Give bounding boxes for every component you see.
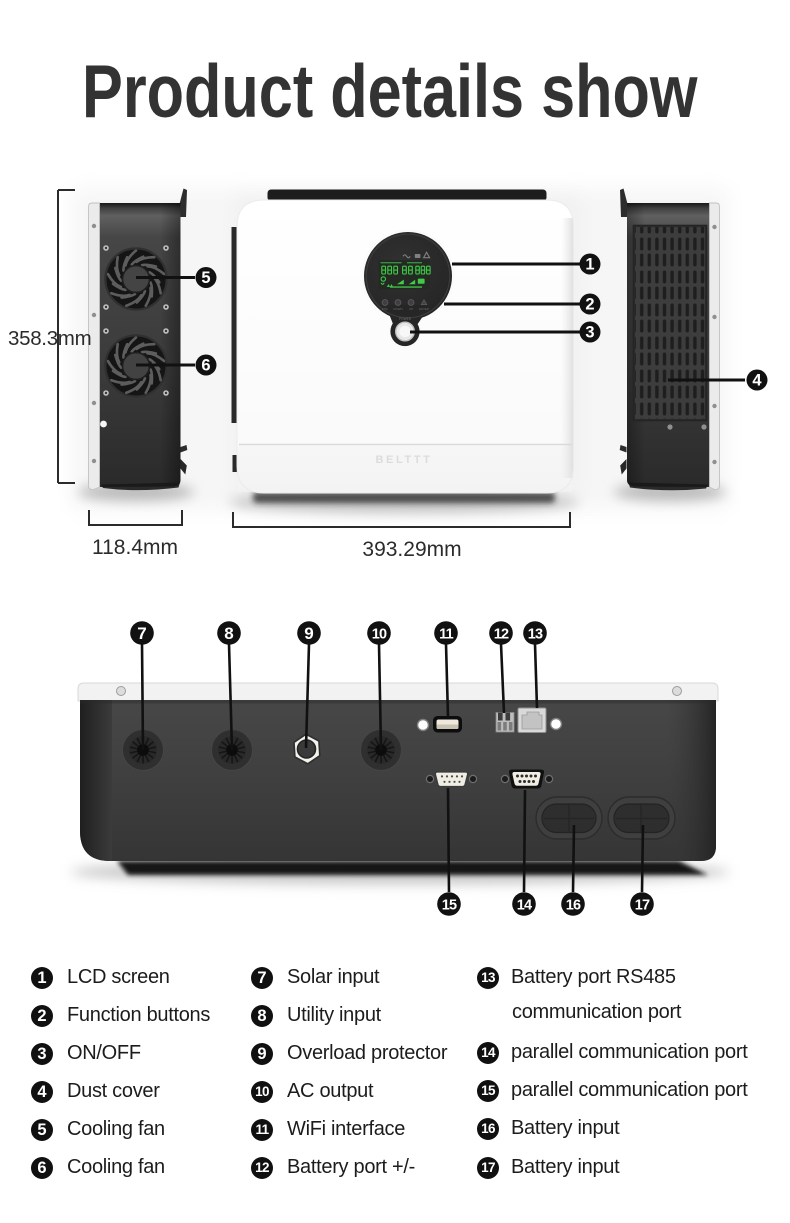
svg-text:2: 2 (585, 296, 594, 314)
svg-text:15: 15 (442, 898, 457, 914)
svg-text:5: 5 (201, 269, 210, 287)
svg-text:ESC: ESC (382, 307, 388, 311)
svg-text:6: 6 (201, 357, 210, 375)
svg-text:DOWN: DOWN (393, 307, 402, 311)
svg-text:16: 16 (566, 898, 581, 914)
svg-text:BELTTT: BELTTT (376, 454, 433, 466)
svg-text:10: 10 (372, 627, 387, 643)
svg-text:118.4mm: 118.4mm (92, 536, 178, 559)
svg-text:13: 13 (528, 627, 543, 643)
svg-text:8: 8 (224, 624, 233, 643)
svg-text:POWER: POWER (399, 317, 412, 321)
svg-text:12: 12 (494, 627, 509, 643)
svg-text:14: 14 (517, 898, 532, 914)
svg-text:UP: UP (409, 307, 413, 311)
svg-text:11: 11 (439, 627, 453, 643)
svg-text:ENTER: ENTER (419, 307, 429, 311)
svg-text:4: 4 (752, 372, 762, 390)
svg-text:358.3mm: 358.3mm (8, 327, 91, 350)
svg-text:17: 17 (635, 898, 650, 914)
svg-text:3: 3 (585, 324, 594, 342)
svg-text:9: 9 (304, 624, 313, 643)
svg-text:393.29mm: 393.29mm (362, 538, 461, 561)
svg-text:7: 7 (137, 624, 146, 643)
svg-text:1: 1 (585, 256, 594, 274)
